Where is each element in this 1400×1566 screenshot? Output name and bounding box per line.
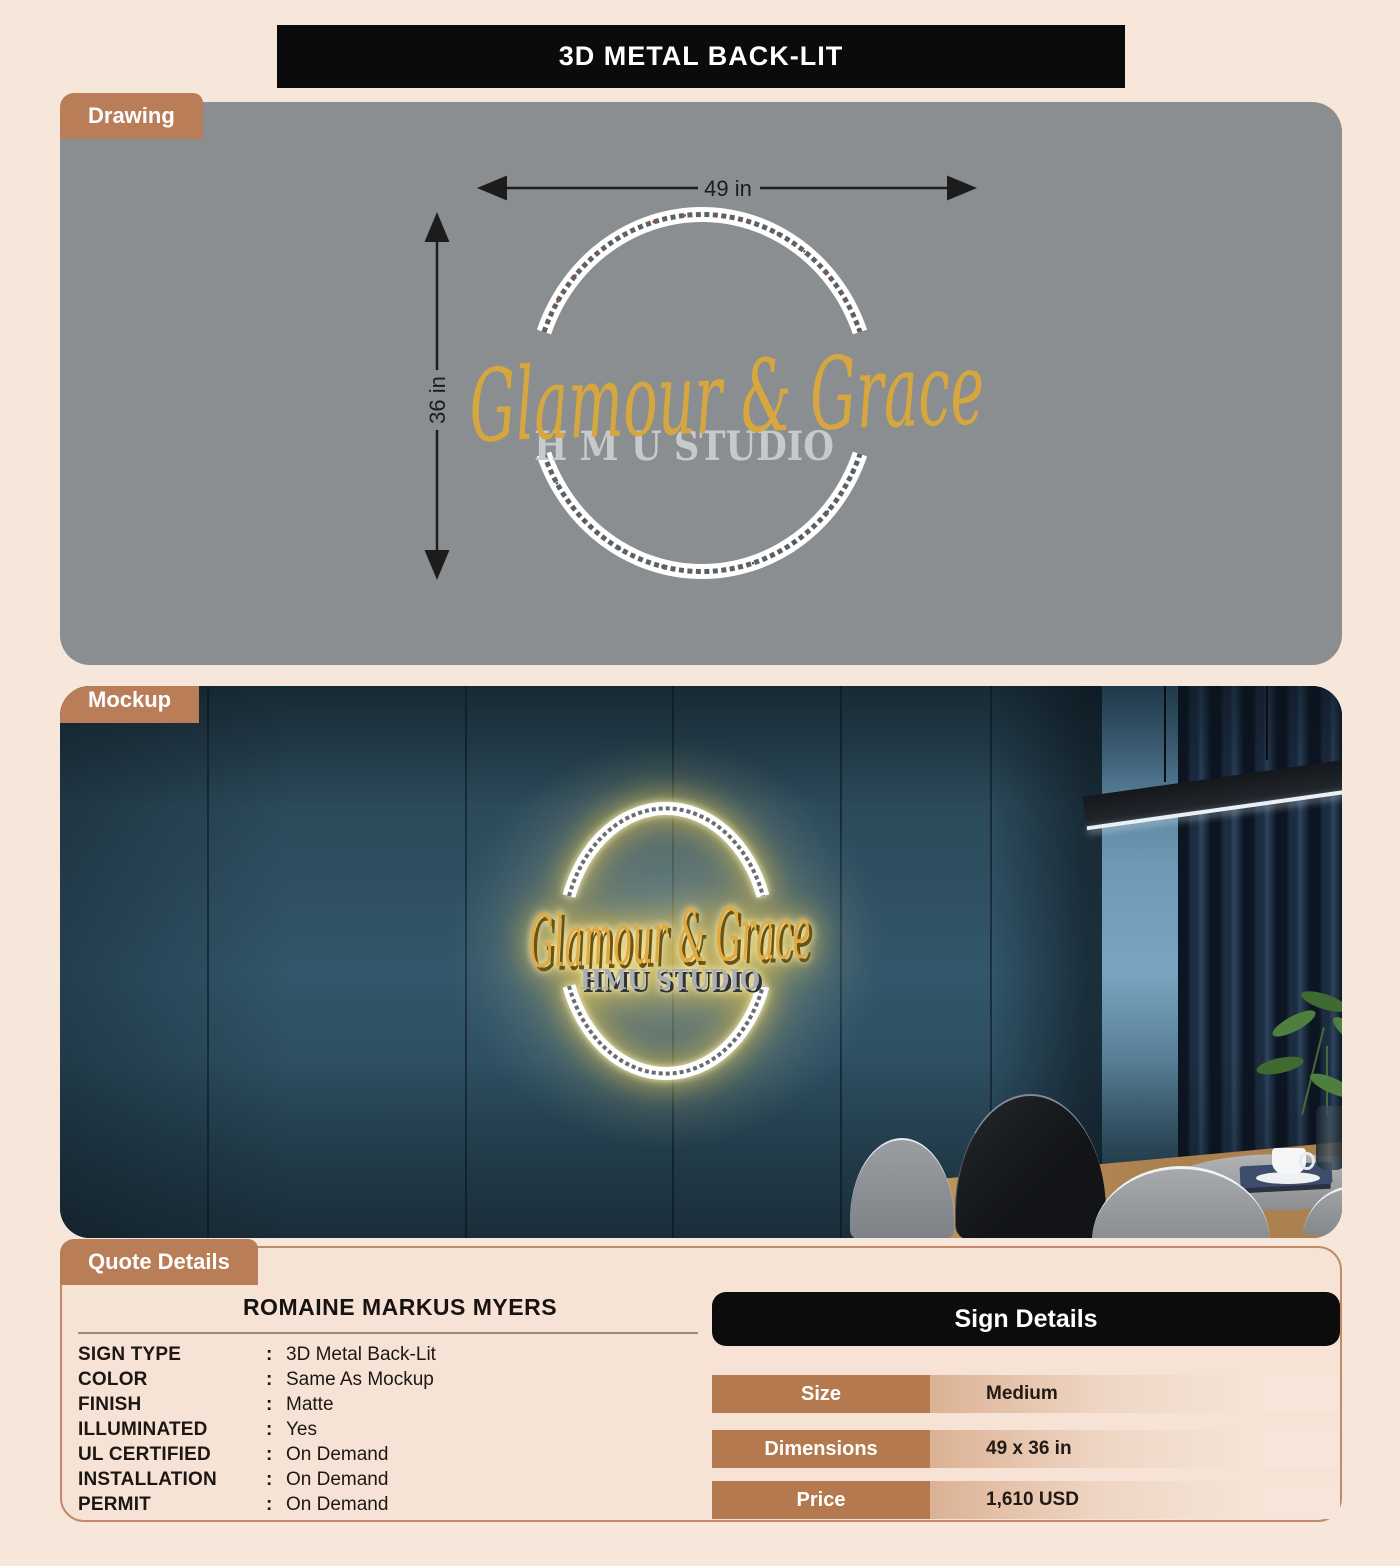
sign-detail-value: Medium <box>986 1375 1058 1413</box>
quote-sheet-page: { "header": { "title": "3D METAL BACK-LI… <box>0 0 1400 1566</box>
field-separator: : <box>266 1394 286 1416</box>
field-value: On Demand <box>286 1494 388 1516</box>
plant-vase <box>1316 1106 1342 1170</box>
quote-field-row: SIGN TYPE : 3D Metal Back-Lit <box>78 1342 436 1367</box>
mockup-script-text: Glamour & Grace <box>527 890 812 984</box>
sign-detail-label: Dimensions <box>712 1430 930 1468</box>
quote-field-row: INSTALLATION : On Demand <box>78 1467 436 1492</box>
mockup-panel: HMU STUDIO HMU STUDIO Glamour & Grace Gl… <box>60 686 1342 1238</box>
sign-details-header: Sign Details <box>712 1292 1340 1346</box>
drawing-canvas: 49 in 36 in H M U STUDIO Glamour & Grace <box>60 102 1342 665</box>
sign-detail-label: Price <box>712 1481 930 1519</box>
field-value: Yes <box>286 1419 317 1441</box>
divider-line <box>78 1332 698 1334</box>
field-label: COLOR <box>78 1369 266 1391</box>
sign-detail-value: 1,610 USD <box>986 1481 1079 1519</box>
quote-field-row: COLOR : Same As Mockup <box>78 1367 436 1392</box>
sign-detail-value: 49 x 36 in <box>986 1430 1072 1468</box>
field-label: SIGN TYPE <box>78 1344 266 1366</box>
quote-details-tab: Quote Details <box>60 1239 258 1285</box>
customer-name: ROMAINE MARKUS MYERS <box>76 1294 724 1321</box>
coffee-cup <box>1272 1148 1306 1174</box>
drawing-tab: Drawing <box>60 93 203 139</box>
quote-field-row: FINISH : Matte <box>78 1392 436 1417</box>
field-separator: : <box>266 1369 286 1391</box>
lamp-wire <box>1266 686 1268 760</box>
field-value: Matte <box>286 1394 334 1416</box>
field-value: On Demand <box>286 1469 388 1491</box>
width-dimension-line: 49 in <box>482 176 972 201</box>
mockup-sign: HMU STUDIO HMU STUDIO Glamour & Grace Gl… <box>473 746 863 1136</box>
field-value: Same As Mockup <box>286 1369 434 1391</box>
sign-details-row: Price 1,610 USD <box>712 1481 1340 1519</box>
quote-field-row: ILLUMINATED : Yes <box>78 1417 436 1442</box>
quote-field-row: PERMIT : On Demand <box>78 1492 436 1517</box>
height-dimension-line: 36 in <box>425 217 450 575</box>
logo-script-text: Glamour & Grace <box>467 330 986 465</box>
field-value: 3D Metal Back-Lit <box>286 1344 436 1366</box>
field-label: INSTALLATION <box>78 1469 266 1491</box>
quote-fields-list: SIGN TYPE : 3D Metal Back-Lit COLOR : Sa… <box>78 1342 436 1517</box>
field-value: On Demand <box>286 1444 388 1466</box>
field-separator: : <box>266 1444 286 1466</box>
field-label: PERMIT <box>78 1494 266 1516</box>
sign-detail-label: Size <box>712 1375 930 1413</box>
sign-details-row: Size Medium <box>712 1375 1340 1413</box>
field-separator: : <box>266 1469 286 1491</box>
field-label: UL CERTIFIED <box>78 1444 266 1466</box>
field-separator: : <box>266 1494 286 1516</box>
mockup-tab: Mockup <box>60 686 199 723</box>
drawing-panel: Drawing 49 in 36 in H M U ST <box>60 102 1342 665</box>
height-dimension-label: 36 in <box>425 376 450 424</box>
page-title: 3D METAL BACK-LIT <box>277 25 1125 88</box>
quote-details-panel: Quote Details ROMAINE MARKUS MYERS SIGN … <box>60 1246 1342 1522</box>
field-separator: : <box>266 1419 286 1441</box>
field-label: FINISH <box>78 1394 266 1416</box>
lamp-wire <box>1164 686 1166 782</box>
sign-details-row: Dimensions 49 x 36 in <box>712 1430 1340 1468</box>
field-label: ILLUMINATED <box>78 1419 266 1441</box>
width-dimension-label: 49 in <box>704 176 752 201</box>
field-separator: : <box>266 1344 286 1366</box>
quote-field-row: UL CERTIFIED : On Demand <box>78 1442 436 1467</box>
